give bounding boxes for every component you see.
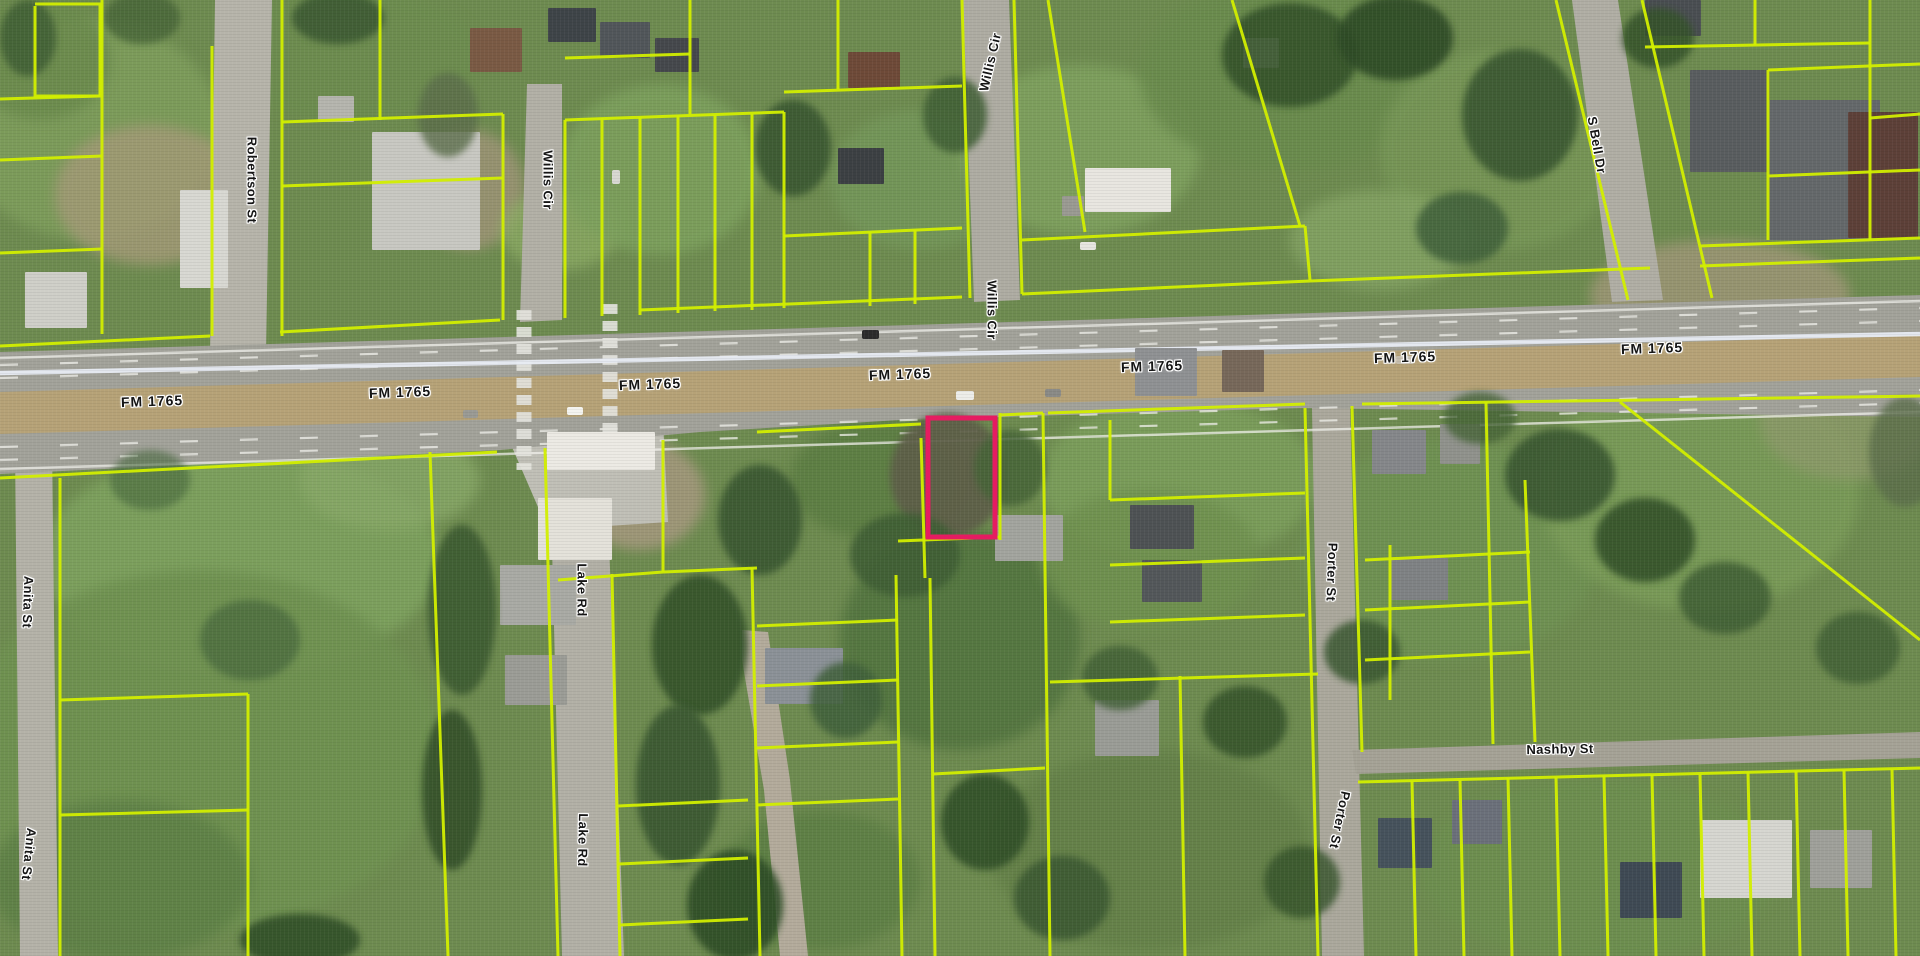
street-label: Willis Cir — [976, 31, 1004, 92]
road-label: FM 1765 — [1374, 348, 1437, 366]
road-label: FM 1765 — [619, 375, 682, 393]
street-label: S Bell Dr — [1585, 115, 1610, 175]
road-label: FM 1765 — [1121, 357, 1184, 375]
street-label: Willis Cir — [985, 280, 1000, 340]
road-label: FM 1765 — [869, 365, 932, 383]
street-label: Robertson St — [245, 137, 260, 223]
map-canvas[interactable]: FM 1765FM 1765FM 1765FM 1765FM 1765FM 17… — [0, 0, 1920, 956]
street-label: Porter St — [1323, 542, 1340, 601]
street-label: Nashby St — [1526, 741, 1593, 757]
road-label: FM 1765 — [121, 392, 184, 410]
street-label: Porter St — [1327, 790, 1354, 850]
street-labels-layer: FM 1765FM 1765FM 1765FM 1765FM 1765FM 17… — [0, 0, 1920, 956]
street-label: Lake Rd — [575, 563, 590, 616]
street-label: Lake Rd — [575, 813, 591, 867]
street-label: Willis Cir — [541, 150, 556, 210]
street-label: Anita St — [20, 576, 37, 629]
street-label: Anita St — [19, 827, 39, 881]
road-label: FM 1765 — [1621, 339, 1684, 357]
road-label: FM 1765 — [369, 383, 432, 401]
